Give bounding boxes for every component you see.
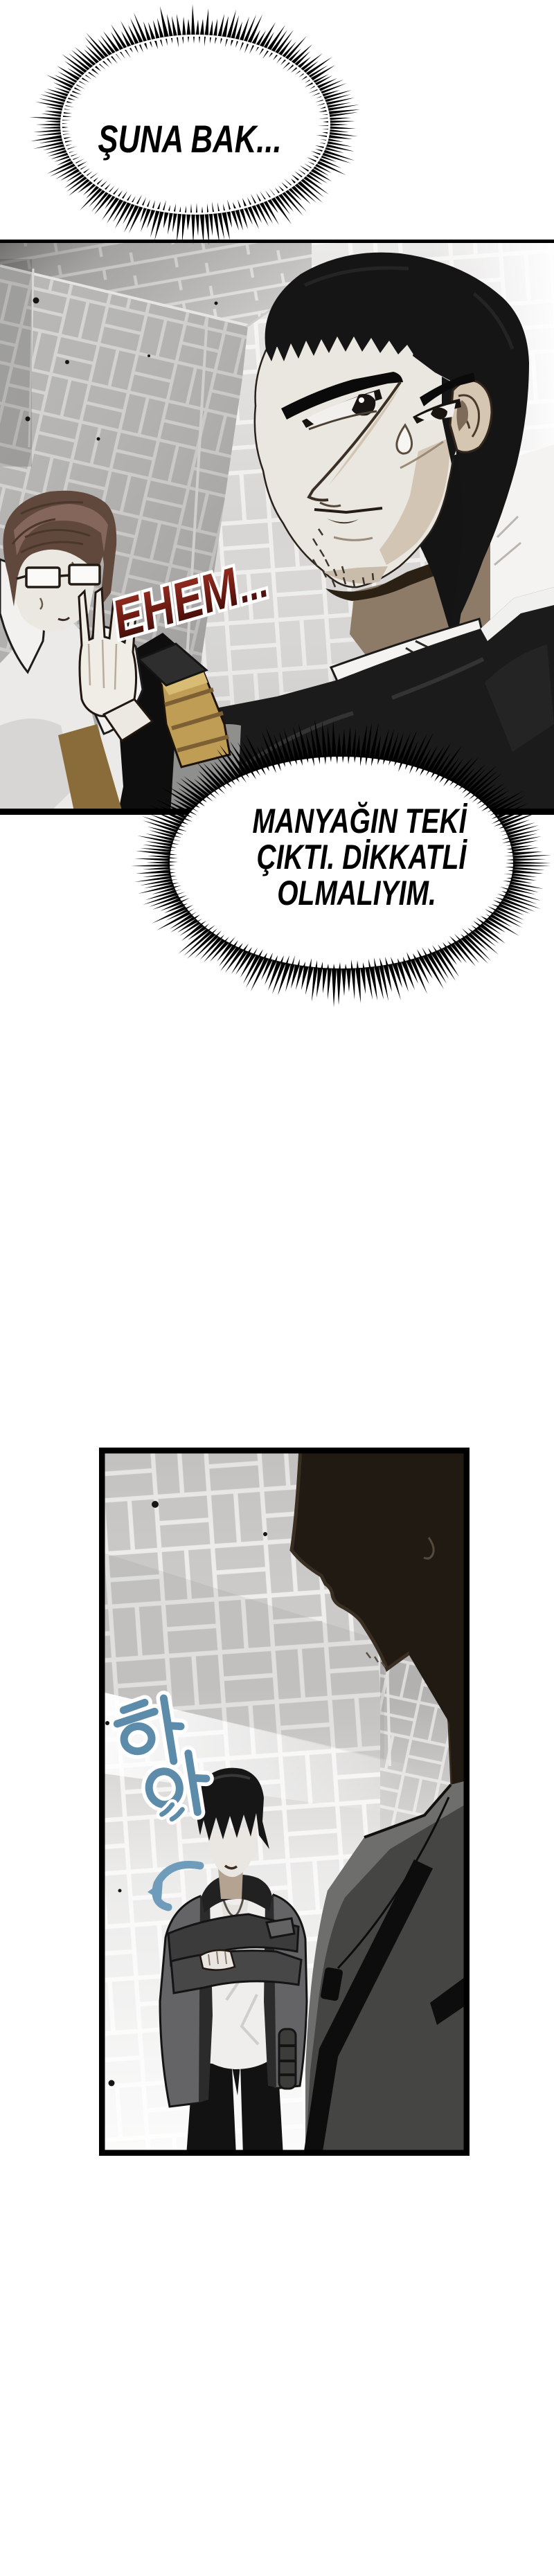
svg-text:MANYAĞIN TEKİ: MANYAĞIN TEKİ — [252, 801, 467, 840]
svg-text:ÇIKTI. DİKKATLİ: ÇIKTI. DİKKATLİ — [257, 837, 468, 876]
svg-text:OLMALIYIM.: OLMALIYIM. — [277, 873, 436, 912]
svg-text:ŞUNA BAK...: ŞUNA BAK... — [98, 118, 281, 161]
